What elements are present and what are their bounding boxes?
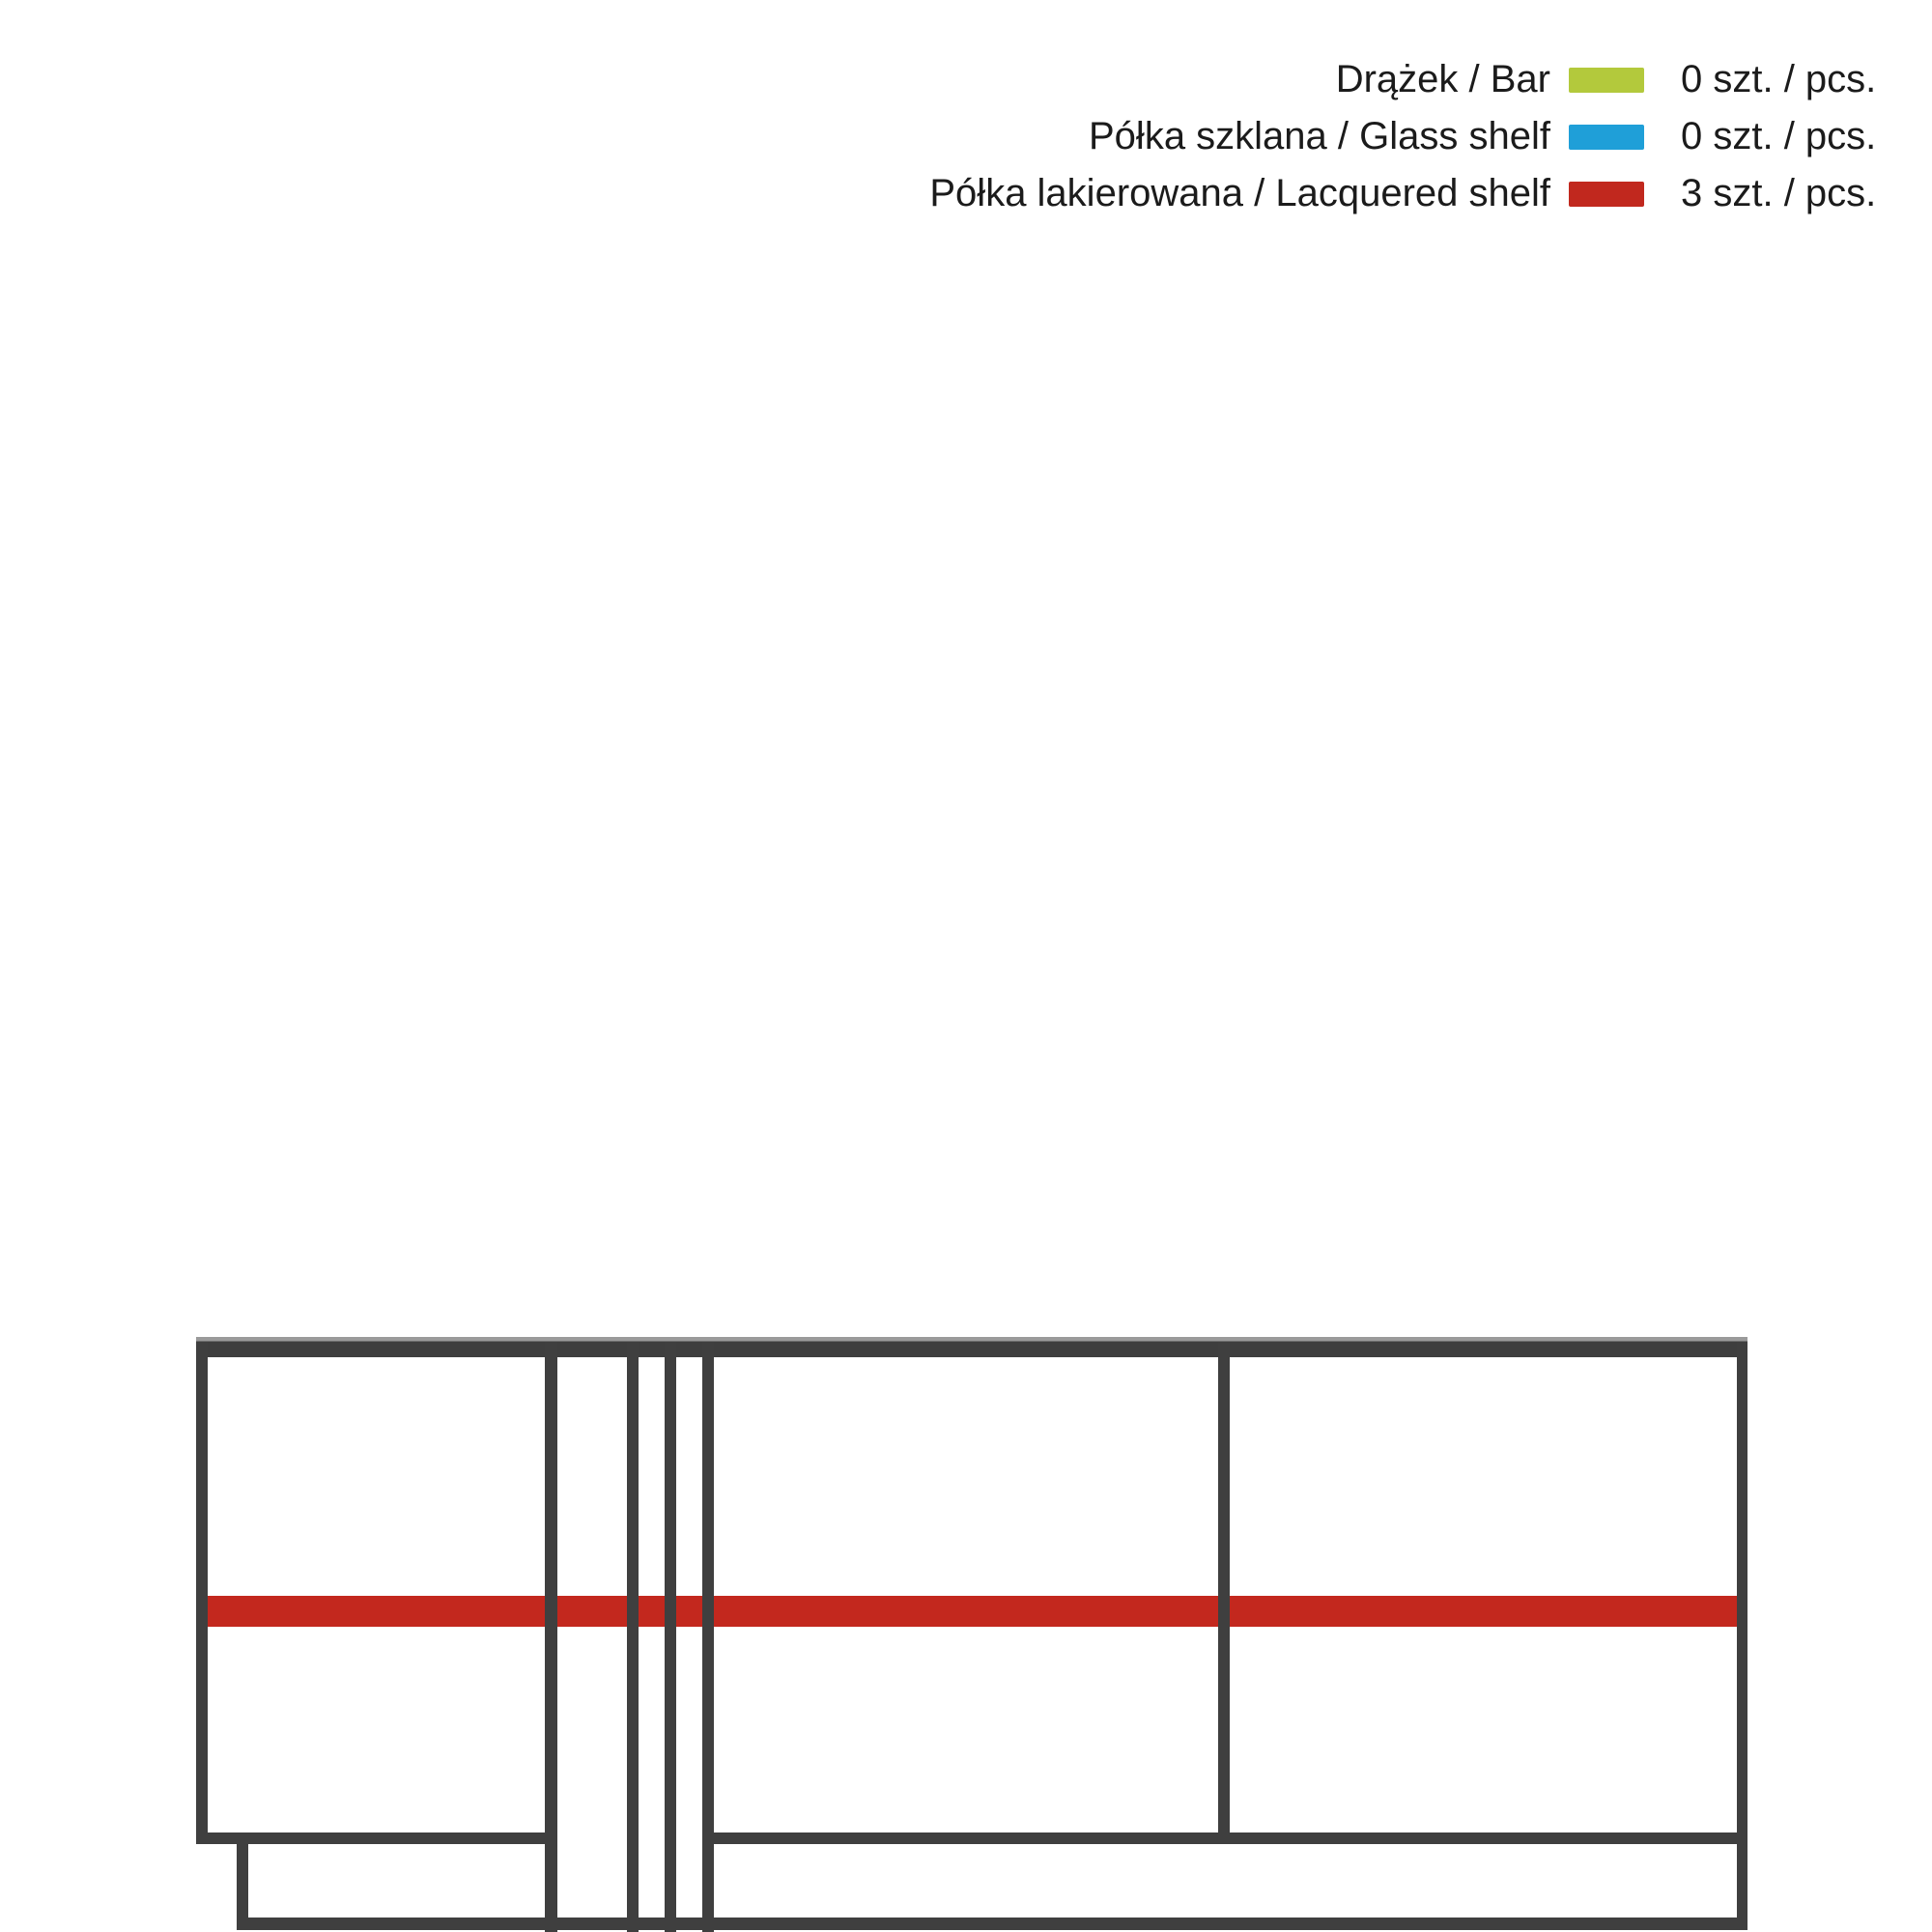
cabinet-left-side-panel	[196, 1342, 208, 1843]
legend-count-bar: 0 szt. / pcs.	[1681, 58, 1876, 101]
legend-count-lacquered-shelf: 3 szt. / pcs.	[1681, 172, 1876, 215]
vertical-divider-3	[665, 1342, 676, 1932]
legend-label-lacquered-shelf: Półka lakierowana / Lacquered shelf	[0, 172, 1550, 215]
page: Drążek / Bar 0 szt. / pcs. Półka szklana…	[0, 0, 1932, 1932]
vertical-divider-4	[702, 1342, 714, 1932]
cabinet-right-side-panel	[1737, 1342, 1747, 1930]
lacquered-shelf-line	[196, 1596, 1747, 1627]
legend-row-bar: Drążek / Bar 0 szt. / pcs.	[0, 51, 1922, 108]
vertical-divider-middle	[1218, 1342, 1230, 1833]
glass-shelf-color-swatch	[1569, 125, 1644, 150]
legend-label-glass-shelf: Półka szklana / Glass shelf	[0, 115, 1550, 158]
vertical-divider-1	[545, 1342, 557, 1932]
plinth-left-edge	[237, 1843, 248, 1930]
legend-row-lacquered-shelf: Półka lakierowana / Lacquered shelf 3 sz…	[0, 165, 1922, 222]
legend-count-glass-shelf: 0 szt. / pcs.	[1681, 115, 1876, 158]
cabinet-bottom-panel-left	[196, 1833, 545, 1844]
bar-color-swatch	[1569, 68, 1644, 93]
parts-legend: Drążek / Bar 0 szt. / pcs. Półka szklana…	[0, 51, 1922, 222]
vertical-divider-2	[627, 1342, 639, 1932]
legend-label-bar: Drążek / Bar	[0, 58, 1550, 101]
lacquered-shelf-color-swatch	[1569, 182, 1644, 207]
cabinet-top-panel	[196, 1337, 1747, 1357]
plinth-bottom-edge	[237, 1918, 1747, 1930]
legend-row-glass-shelf: Półka szklana / Glass shelf 0 szt. / pcs…	[0, 108, 1922, 165]
cabinet-bottom-panel-right	[714, 1833, 1747, 1844]
